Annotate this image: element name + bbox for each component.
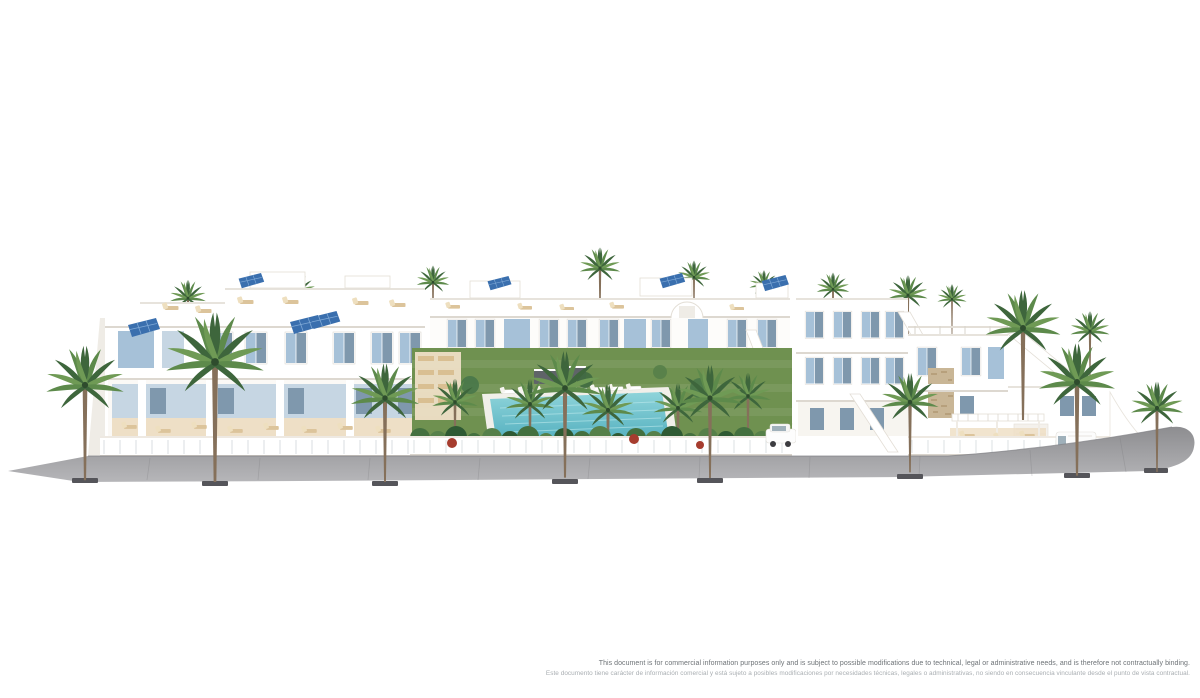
pool-courtyard bbox=[410, 348, 796, 474]
front-wall-courtyard bbox=[410, 436, 792, 456]
residential-complex-illustration bbox=[0, 0, 1200, 698]
legal-disclaimer: This document is for commercial informat… bbox=[430, 659, 1190, 678]
left-apartment-block bbox=[88, 272, 430, 457]
roof-bulkhead bbox=[345, 276, 390, 288]
disclaimer-line-english: This document is for commercial informat… bbox=[430, 659, 1190, 668]
stone-clad-wall bbox=[928, 368, 954, 418]
glass-balustrade bbox=[104, 440, 424, 454]
disclaimer-line-spanish: Este documento tiene carácter de informa… bbox=[430, 670, 1190, 678]
front-wall-left bbox=[100, 436, 430, 457]
red-flowers bbox=[629, 434, 639, 444]
red-flowers bbox=[696, 441, 704, 449]
red-flowers bbox=[447, 438, 457, 448]
render-page: This document is for commercial informat… bbox=[0, 0, 1200, 698]
